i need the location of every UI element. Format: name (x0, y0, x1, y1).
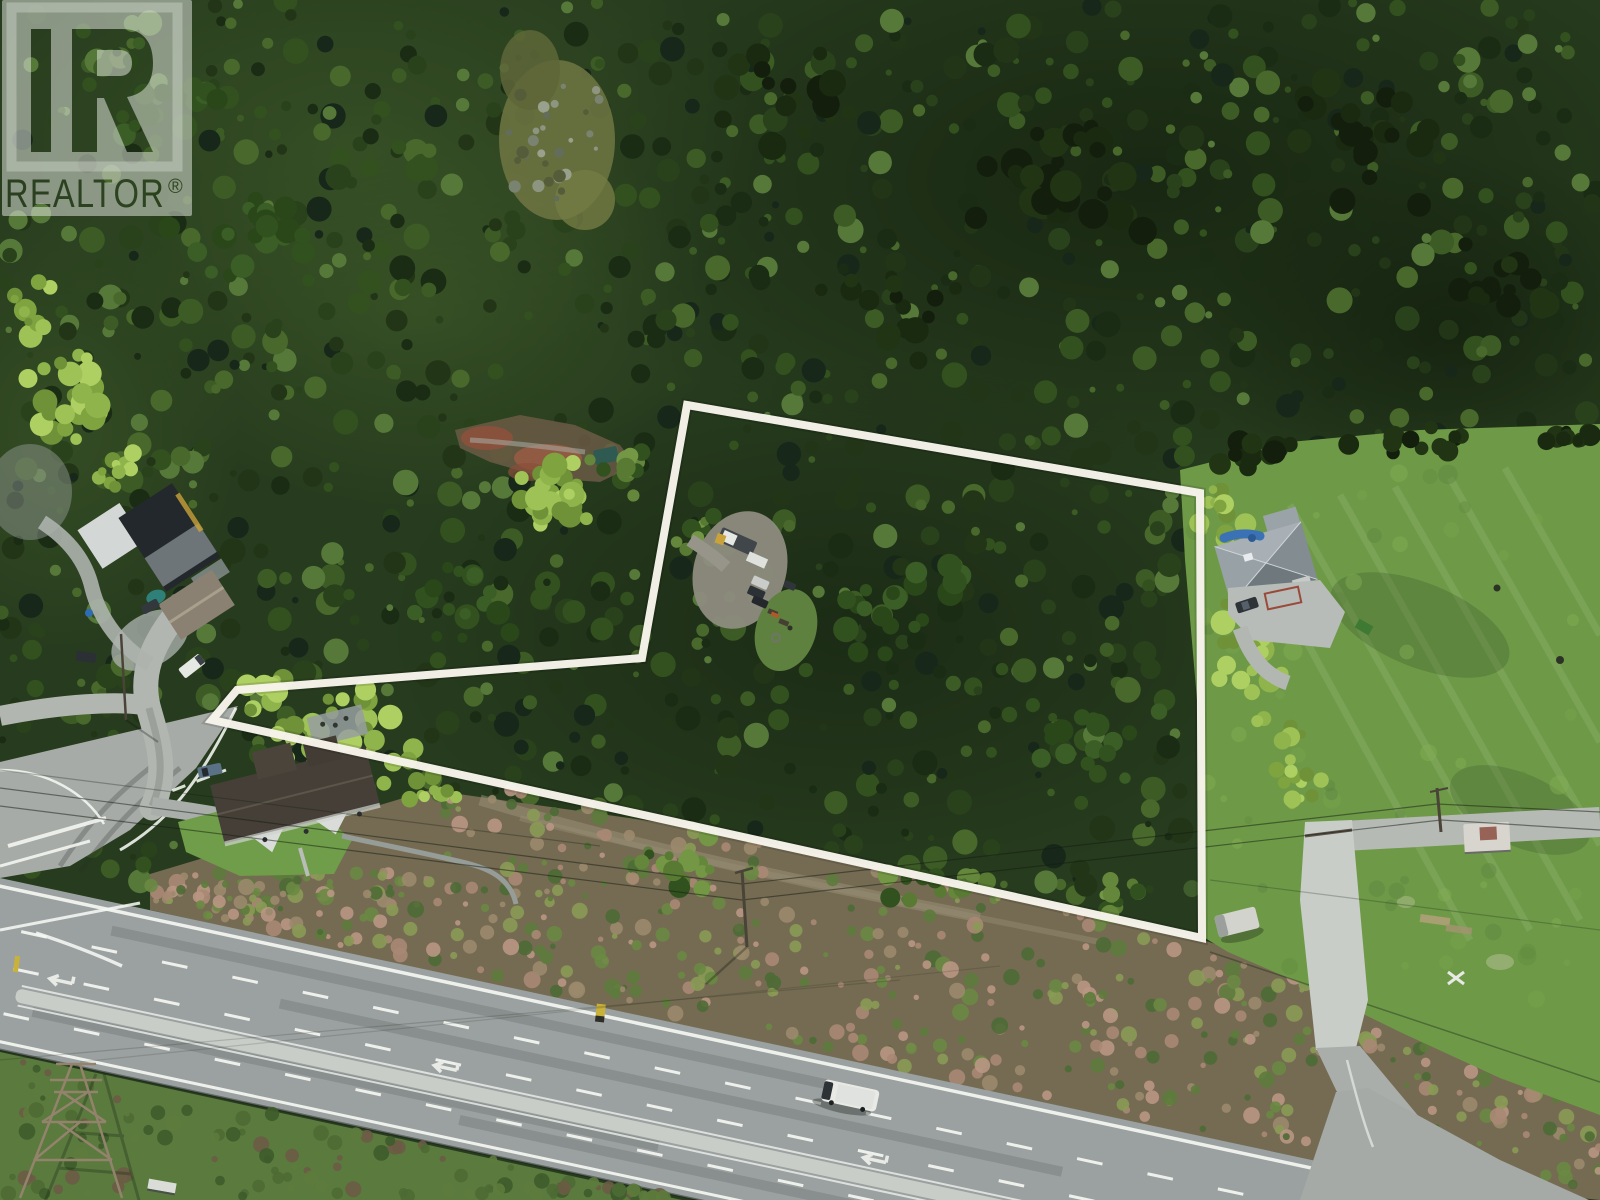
aerial-photo: REALTOR ® (0, 0, 1600, 1200)
shed-trailer (1463, 822, 1510, 853)
realtor-watermark (2, 0, 192, 216)
blue-barrel (85, 609, 93, 617)
